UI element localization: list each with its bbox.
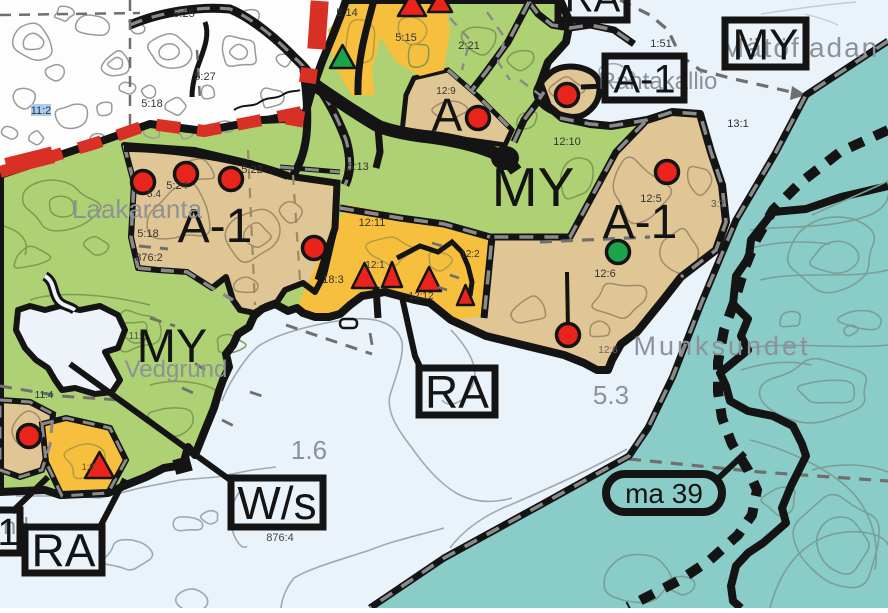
svg-text:876:4: 876:4	[266, 532, 294, 544]
svg-text:5:27: 5:27	[194, 71, 215, 83]
svg-text:12:12: 12:12	[408, 291, 433, 302]
svg-text:A-1: A-1	[603, 196, 678, 249]
svg-text:MY: MY	[733, 20, 799, 69]
svg-text:ma 39: ma 39	[625, 478, 703, 509]
svg-text:5:15: 5:15	[395, 32, 416, 44]
svg-text:12:6: 12:6	[598, 345, 618, 356]
svg-text:A: A	[432, 89, 463, 141]
svg-text:11:4: 11:4	[35, 390, 54, 401]
svg-text:1:51: 1:51	[650, 38, 671, 50]
svg-text:MY: MY	[492, 156, 575, 218]
svg-text:18:3: 18:3	[322, 274, 343, 286]
svg-text:11:2: 11:2	[31, 105, 52, 117]
svg-text:RA: RA	[32, 525, 96, 577]
svg-text:W/s: W/s	[237, 477, 316, 529]
svg-text:876:2: 876:2	[135, 252, 163, 264]
svg-text:12:1: 12:1	[365, 260, 385, 271]
svg-text:3:2: 3:2	[711, 199, 725, 210]
svg-text:RA: RA	[425, 366, 489, 418]
svg-text:5:18: 5:18	[137, 228, 158, 240]
svg-text:5:22: 5:22	[241, 164, 262, 176]
svg-text:Vedgrund: Vedgrund	[125, 356, 228, 383]
svg-text:12:6: 12:6	[594, 268, 615, 280]
svg-text:1.6: 1.6	[291, 435, 327, 465]
svg-text:5:13: 5:13	[347, 161, 368, 173]
svg-text:1: 1	[0, 512, 19, 554]
svg-text:Laakaranta: Laakaranta	[72, 194, 203, 224]
svg-text:A-1: A-1	[613, 57, 675, 101]
svg-text:12:10: 12:10	[553, 136, 581, 148]
svg-text:5:25: 5:25	[173, 8, 194, 20]
svg-text:5:18: 5:18	[141, 98, 162, 110]
svg-text:5.3: 5.3	[593, 380, 629, 410]
svg-text:Munksundet: Munksundet	[633, 331, 810, 361]
svg-text:12:11: 12:11	[359, 217, 386, 229]
svg-text:RA: RA	[565, 0, 621, 20]
svg-text:2:21: 2:21	[458, 40, 479, 52]
svg-text:5:24: 5:24	[166, 180, 187, 192]
svg-text:1:8: 1:8	[82, 462, 95, 472]
svg-text:12:2: 12:2	[460, 249, 480, 260]
svg-text:5:14: 5:14	[336, 7, 357, 19]
svg-text:13:1: 13:1	[727, 118, 748, 130]
